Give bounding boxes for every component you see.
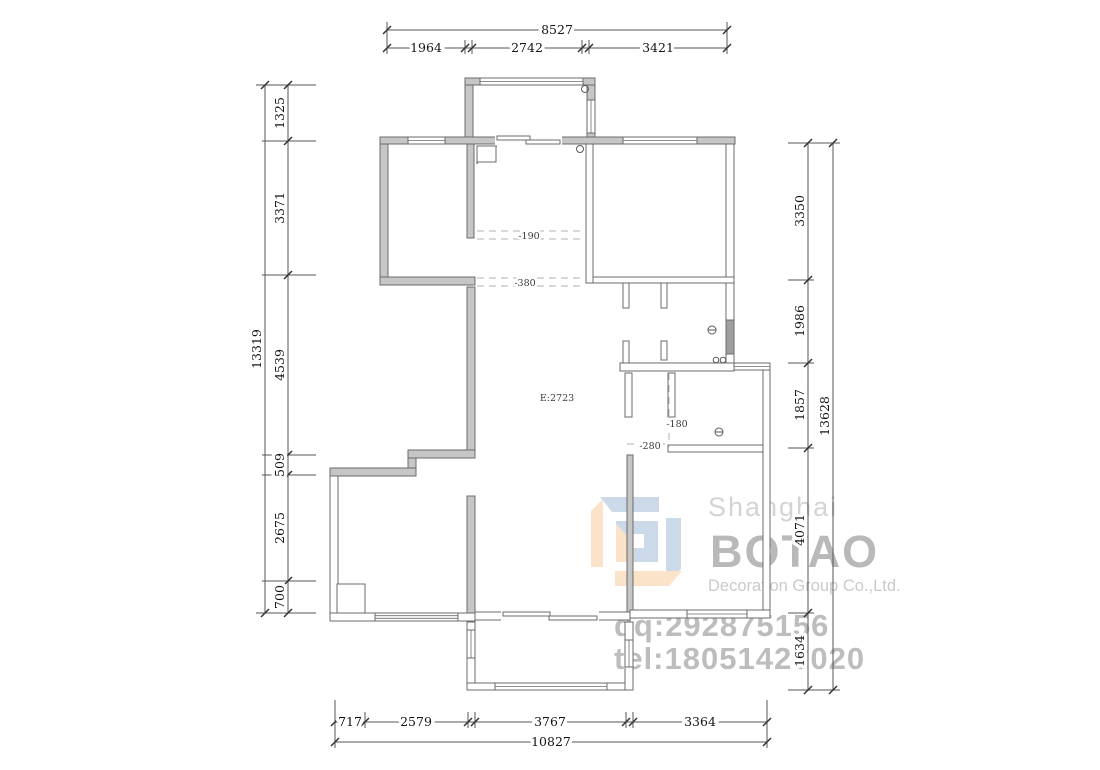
logo-bottom-bar: [615, 571, 682, 586]
sliding-door-bottom: [501, 611, 599, 621]
watermark-company: Decoration Group Co.,Ltd.: [708, 577, 901, 595]
dim-label-top-seg-0: 1964: [410, 40, 442, 55]
dim-label-right-seg-1: 1986: [792, 305, 807, 337]
dim-label-right-seg-0: 3350: [792, 195, 807, 227]
dim-label-bottom-seg-1: 2579: [400, 714, 432, 729]
dim-label-left-seg-4: 2675: [272, 512, 287, 544]
floorplan-canvas: Shanghai BOTAO Decoration Group Co.,Ltd.…: [0, 0, 1100, 770]
pipe-icon: [713, 357, 719, 363]
floor-drain-icon: [715, 428, 723, 436]
level-label-kitchen: -190: [518, 231, 539, 242]
watermark-city: Shanghai: [708, 492, 838, 522]
dim-label-right-seg-3: 4071: [792, 514, 807, 546]
level-label-bath-lower: -280: [639, 441, 660, 452]
level-label-dining: -380: [514, 278, 535, 289]
dim-label-bottom-seg-0: 717: [338, 714, 362, 729]
dim-label-bottom-seg-2: 3767: [534, 714, 566, 729]
dim-label-left-total: 13319: [249, 329, 264, 369]
column-marker-icon: [577, 146, 584, 153]
logo-left-bar: [591, 499, 603, 567]
dim-label-top-seg-1: 2742: [511, 40, 543, 55]
dim-label-top-total: 8527: [541, 22, 573, 37]
watermark: Shanghai BOTAO Decoration Group Co.,Ltd.…: [591, 492, 901, 676]
dim-label-left-seg-2: 4539: [272, 349, 287, 381]
windows: [375, 78, 770, 690]
dim-label-bottom-total: 10827: [531, 734, 571, 749]
watermark-tel: tel:18051428020: [614, 641, 865, 676]
level-annotations: -190 -380 -180 -280 E:2723: [477, 231, 688, 452]
dim-label-right-total: 13628: [817, 396, 832, 436]
pipe-icon: [720, 357, 726, 363]
area-label: E:2723: [540, 393, 574, 404]
dim-label-left-seg-5: 700: [272, 585, 287, 609]
dimension-top: 8527 1964 2742 3421: [383, 22, 731, 55]
dim-label-left-seg-3: 509: [272, 453, 287, 477]
floorplan-drawing: Shanghai BOTAO Decoration Group Co.,Ltd.…: [0, 0, 1100, 770]
dimension-bottom: 717 2579 3767 3364 10827: [331, 700, 771, 749]
floor-drain-icon: [708, 326, 716, 334]
dim-label-top-seg-2: 3421: [642, 40, 674, 55]
swing-door: [477, 146, 497, 164]
dim-label-left-seg-1: 3371: [272, 192, 287, 224]
dimension-left: 13319 1325 3371 4539 509 2675 700: [249, 81, 316, 617]
dim-label-bottom-seg-3: 3364: [684, 714, 716, 729]
dim-label-left-seg-0: 1325: [272, 97, 287, 129]
sliding-door-top: [495, 136, 562, 145]
level-label-bath-upper: -180: [666, 419, 687, 430]
logo-tail: [634, 548, 658, 562]
dim-label-right-seg-2: 1857: [792, 389, 807, 421]
doors: [477, 136, 599, 621]
dim-label-right-seg-4: 1634: [792, 635, 807, 667]
botao-logo: [591, 497, 682, 586]
floor-plan: -190 -380 -180 -280 E:2723: [330, 78, 770, 690]
